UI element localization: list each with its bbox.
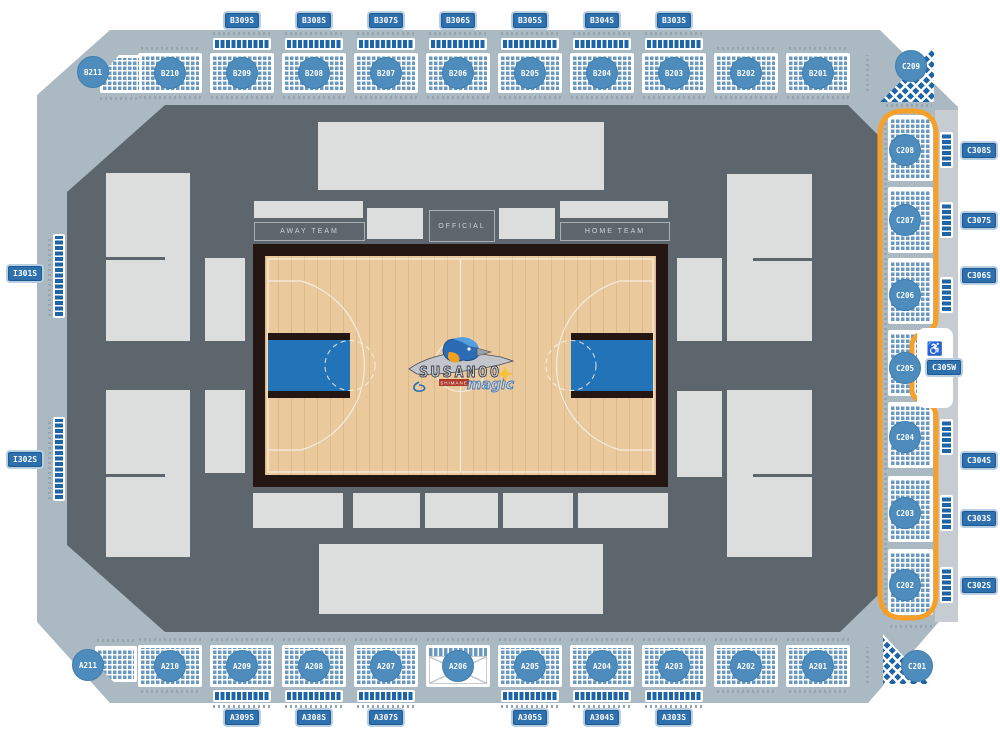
suite-seats: [431, 40, 485, 48]
section-circle-B204[interactable]: B204: [586, 57, 618, 89]
home-team-box: HOME TEAM: [560, 222, 670, 241]
section-circle-C202[interactable]: C202: [889, 569, 921, 601]
suite-badge-A309S[interactable]: A309S: [225, 710, 259, 725]
floor-block-left-lower: [106, 390, 190, 557]
row-numbers: [139, 638, 201, 641]
row-numbers: [499, 638, 561, 641]
section-card-I302S[interactable]: [53, 417, 65, 501]
section-circle-B206[interactable]: B206: [442, 57, 474, 89]
section-circle-A210[interactable]: A210: [154, 650, 186, 682]
row-numbers: [717, 690, 775, 693]
bench-block-2: [353, 493, 420, 528]
suite-badge-I302S[interactable]: I302S: [8, 452, 42, 467]
section-circle-A201[interactable]: A201: [802, 650, 834, 682]
suite-seats: [359, 692, 413, 700]
suite-seats: [575, 40, 629, 48]
row-numbers: [890, 625, 932, 628]
floor-block-left-upper: [106, 173, 190, 341]
suite-badge-I301S[interactable]: I301S: [8, 266, 42, 281]
section-circle-B208[interactable]: B208: [298, 57, 330, 89]
row-numbers: [211, 96, 273, 99]
suite-strip-A308S[interactable]: [285, 690, 343, 702]
official-box: OFFICIAL: [429, 210, 495, 242]
floor-block-right-upper-narrow: [677, 258, 722, 341]
row-numbers: [787, 96, 849, 99]
bench-block-4: [503, 493, 573, 528]
away-team-box: AWAY TEAM: [254, 222, 365, 241]
row-numbers: [283, 96, 345, 99]
suite-strip-C308S[interactable]: [940, 132, 953, 168]
wheelchair-badge-C305W[interactable]: C305W: [927, 360, 961, 375]
row-numbers: [213, 32, 271, 35]
suite-seats: [942, 279, 951, 311]
row-numbers: [866, 647, 869, 683]
row-numbers: [787, 638, 849, 641]
row-numbers: [789, 47, 847, 50]
section-circle-C207[interactable]: C207: [889, 204, 921, 236]
section-card-I301S[interactable]: [53, 234, 65, 318]
suite-strip-C303S[interactable]: [940, 495, 953, 531]
section-circle-A206[interactable]: A206: [442, 650, 474, 682]
bench-block-5: [578, 493, 668, 528]
row-numbers: [643, 96, 705, 99]
row-numbers: [886, 104, 932, 107]
suite-badge-B307S[interactable]: B307S: [369, 13, 403, 28]
suite-seats: [942, 421, 951, 453]
row-numbers: [285, 32, 343, 35]
home-table: [560, 201, 668, 218]
section-circle-B207[interactable]: B207: [370, 57, 402, 89]
suite-strip-C307S[interactable]: [940, 202, 953, 238]
suite-seats: [287, 40, 341, 48]
row-numbers: [429, 32, 487, 35]
row-numbers: [501, 705, 559, 708]
suite-badge-B309S[interactable]: B309S: [225, 13, 259, 28]
suite-seats: [942, 204, 951, 236]
stage-block-bottom: [319, 544, 603, 614]
row-numbers: [427, 638, 489, 641]
section-circle-C204[interactable]: C204: [889, 421, 921, 453]
section-circle-A211[interactable]: A211: [72, 649, 104, 681]
floor-block-left-upper-narrow: [205, 258, 245, 341]
row-numbers: [355, 638, 417, 641]
section-circle-B202[interactable]: B202: [730, 57, 762, 89]
team-logo: SUSANOO SHIMANE magic: [405, 336, 517, 394]
suite-strip-A304S[interactable]: [573, 690, 631, 702]
suite-seats: [215, 40, 269, 48]
row-numbers: [100, 97, 140, 100]
row-numbers: [643, 638, 705, 641]
row-numbers: [866, 55, 869, 91]
official-label: OFFICIAL: [438, 223, 486, 230]
section-circle-C203[interactable]: C203: [889, 497, 921, 529]
row-numbers: [48, 236, 51, 316]
section-circle-A203[interactable]: A203: [658, 650, 690, 682]
row-numbers: [141, 47, 199, 50]
suite-badge-A303S[interactable]: A303S: [657, 710, 691, 725]
bench-block-1: [253, 493, 343, 528]
suite-strip-C306S[interactable]: [940, 277, 953, 313]
suite-badge-B306S[interactable]: B306S: [441, 13, 475, 28]
suite-strip-A307S[interactable]: [357, 690, 415, 702]
suite-seats: [55, 419, 63, 499]
suite-seats: [503, 40, 557, 48]
row-numbers: [499, 96, 561, 99]
section-circle-B211[interactable]: B211: [77, 56, 109, 88]
suite-strip-B304S[interactable]: [573, 38, 631, 50]
home-team-label: HOME TEAM: [585, 228, 645, 235]
suite-strip-B303S[interactable]: [645, 38, 703, 50]
suite-strip-C302S[interactable]: [940, 567, 953, 603]
section-circle-B209[interactable]: B209: [226, 57, 258, 89]
suite-seats: [942, 497, 951, 529]
suite-badge-B308S[interactable]: B308S: [297, 13, 331, 28]
row-numbers: [139, 96, 201, 99]
suite-badge-A307S[interactable]: A307S: [369, 710, 403, 725]
row-numbers: [427, 96, 489, 99]
suite-strip-B308S[interactable]: [285, 38, 343, 50]
row-numbers: [884, 115, 887, 615]
row-numbers: [715, 638, 777, 641]
suite-badge-C303S[interactable]: C303S: [962, 511, 996, 526]
row-numbers: [211, 638, 273, 641]
section-circle-B203[interactable]: B203: [658, 57, 690, 89]
floor-block-right-upper: [727, 174, 812, 341]
suite-seats: [215, 692, 269, 700]
away-table: [254, 201, 363, 218]
basketball-court: SUSANOO SHIMANE magic: [253, 244, 668, 487]
row-numbers: [717, 47, 775, 50]
suite-strip-B306S[interactable]: [429, 38, 487, 50]
row-numbers: [573, 32, 631, 35]
logo-word-text: magic: [467, 377, 515, 393]
suite-badge-B304S[interactable]: B304S: [585, 13, 619, 28]
row-numbers: [141, 690, 199, 693]
suite-strip-A309S[interactable]: [213, 690, 271, 702]
section-circle-A208[interactable]: A208: [298, 650, 330, 682]
wheelchair-icon: ♿: [927, 342, 943, 408]
suite-badge-A304S[interactable]: A304S: [585, 710, 619, 725]
row-numbers: [571, 638, 633, 641]
section-circle-A207[interactable]: A207: [370, 650, 402, 682]
suite-seats: [359, 40, 413, 48]
suite-badge-A308S[interactable]: A308S: [297, 710, 331, 725]
suite-seats: [942, 569, 951, 601]
suite-badge-B303S[interactable]: B303S: [657, 13, 691, 28]
bench-block-3: [425, 493, 498, 528]
section-circle-C205[interactable]: C205: [889, 352, 921, 384]
row-numbers: [715, 96, 777, 99]
row-numbers: [645, 705, 703, 708]
row-numbers: [213, 705, 271, 708]
row-numbers: [789, 690, 847, 693]
suite-seats: [942, 134, 951, 166]
section-circle-B210[interactable]: B210: [154, 57, 186, 89]
section-circle-B205[interactable]: B205: [514, 57, 546, 89]
arena-seat-map: AWAY TEAM OFFICIAL HOME TEAM: [0, 0, 1000, 740]
section-circle-B201[interactable]: B201: [802, 57, 834, 89]
floor-block-right-lower: [727, 390, 812, 557]
suite-strip-C304S[interactable]: [940, 419, 953, 455]
suite-badge-A305S[interactable]: A305S: [513, 710, 547, 725]
section-circle-A205[interactable]: A205: [514, 650, 546, 682]
section-circle-A209[interactable]: A209: [226, 650, 258, 682]
suite-badge-C302S[interactable]: C302S: [962, 578, 996, 593]
suite-seats: [287, 692, 341, 700]
suite-badge-C306S[interactable]: C306S: [962, 268, 996, 283]
stage-block-top: [318, 122, 604, 190]
row-numbers: [571, 96, 633, 99]
row-numbers: [355, 96, 417, 99]
suite-badge-C307S[interactable]: C307S: [962, 213, 996, 228]
suite-strip-B307S[interactable]: [357, 38, 415, 50]
floor-block-right-lower-narrow: [677, 391, 722, 477]
suite-seats: [503, 692, 557, 700]
suite-strip-A305S[interactable]: [501, 690, 559, 702]
row-numbers: [283, 638, 345, 641]
suite-badge-B305S[interactable]: B305S: [513, 13, 547, 28]
section-circle-C209[interactable]: C209: [895, 50, 927, 82]
suite-seats: [647, 40, 701, 48]
suite-seats: [55, 236, 63, 316]
suite-strip-B309S[interactable]: [213, 38, 271, 50]
row-numbers: [357, 705, 415, 708]
suite-badge-C308S[interactable]: C308S: [962, 143, 996, 158]
row-numbers: [357, 32, 415, 35]
section-circle-C206[interactable]: C206: [889, 279, 921, 311]
row-numbers: [645, 32, 703, 35]
section-circle-A202[interactable]: A202: [730, 650, 762, 682]
away-team-label: AWAY TEAM: [280, 228, 339, 235]
section-circle-C201[interactable]: C201: [901, 650, 933, 682]
section-circle-A204[interactable]: A204: [586, 650, 618, 682]
suite-badge-C304S[interactable]: C304S: [962, 453, 996, 468]
row-numbers: [285, 705, 343, 708]
section-circle-C208[interactable]: C208: [889, 134, 921, 166]
scorer-table-left: [367, 208, 423, 239]
row-numbers: [501, 32, 559, 35]
row-numbers: [573, 705, 631, 708]
suite-strip-A303S[interactable]: [645, 690, 703, 702]
suite-seats: [647, 692, 701, 700]
scorer-table-right: [499, 208, 555, 239]
floor-block-left-lower-narrow: [205, 390, 245, 473]
row-numbers: [48, 419, 51, 499]
suite-strip-B305S[interactable]: [501, 38, 559, 50]
suite-seats: [575, 692, 629, 700]
row-numbers: [97, 639, 137, 642]
logo-sub-text: SHIMANE: [440, 381, 468, 386]
